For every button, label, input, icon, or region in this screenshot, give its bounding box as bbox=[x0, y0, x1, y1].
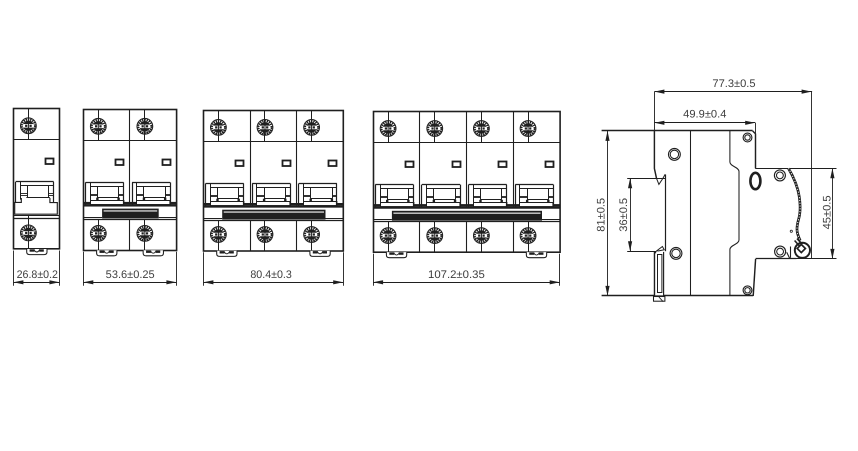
svg-text:77.3±0.5: 77.3±0.5 bbox=[712, 78, 755, 90]
svg-text:53.6±0.25: 53.6±0.25 bbox=[106, 269, 155, 281]
svg-text:45±0.5: 45±0.5 bbox=[821, 195, 833, 229]
svg-text:36±0.5: 36±0.5 bbox=[618, 198, 630, 232]
svg-text:80.4±0.3: 80.4±0.3 bbox=[250, 269, 292, 281]
svg-text:49.9±0.4: 49.9±0.4 bbox=[683, 108, 726, 120]
svg-text:26.8±0.2: 26.8±0.2 bbox=[17, 269, 58, 281]
svg-text:81±0.5: 81±0.5 bbox=[595, 198, 607, 232]
svg-text:107.2±0.35: 107.2±0.35 bbox=[428, 269, 485, 281]
